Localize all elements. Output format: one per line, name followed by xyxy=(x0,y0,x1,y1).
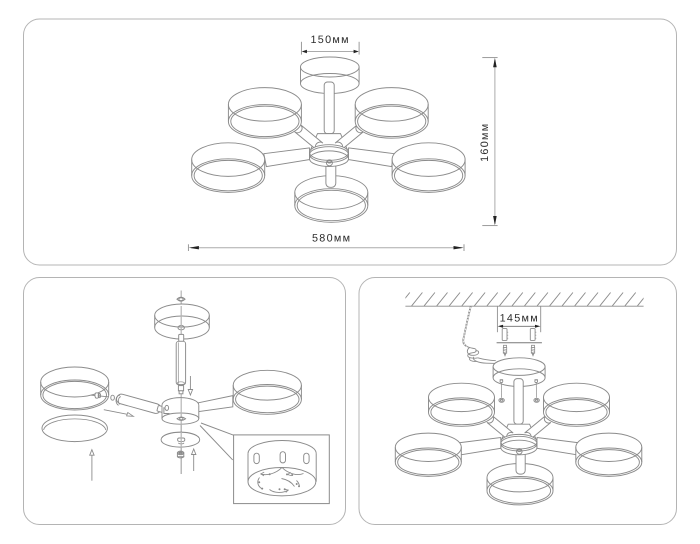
svg-text:160мм: 160мм xyxy=(479,123,491,162)
svg-text:145мм: 145мм xyxy=(500,312,539,324)
svg-text:150мм: 150мм xyxy=(311,34,350,46)
svg-text:580мм: 580мм xyxy=(312,233,351,245)
